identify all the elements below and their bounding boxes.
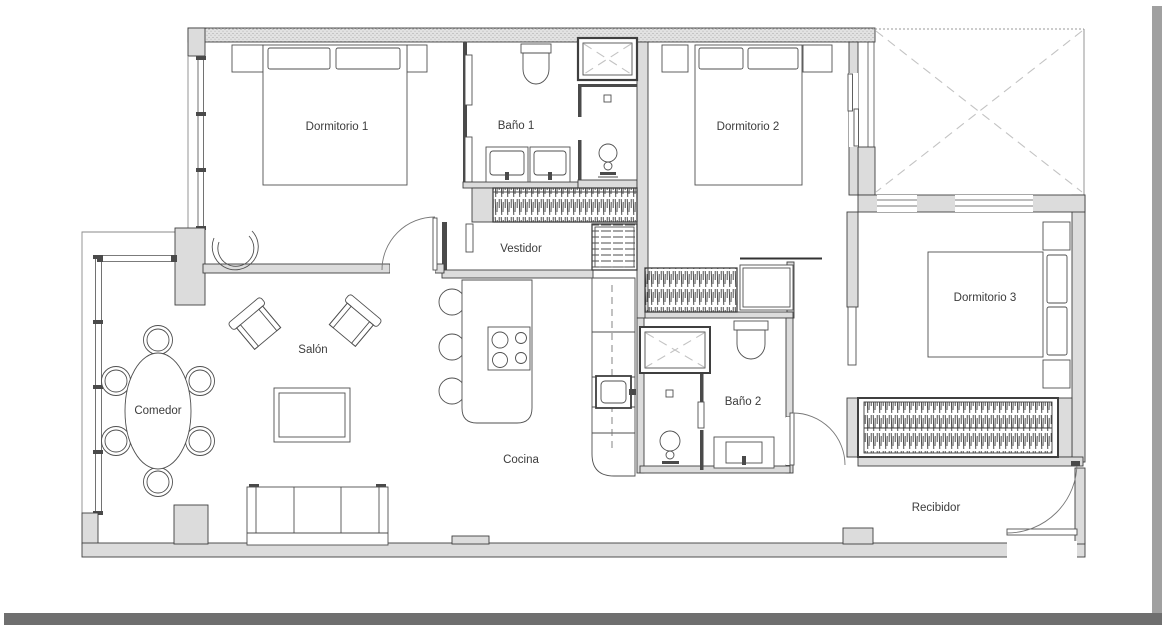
toilet-bano-1 — [523, 53, 549, 84]
wall-bano1-vestidor — [463, 182, 578, 188]
pedestal-sink-wc2 — [659, 390, 681, 466]
shelf-unit-vestidor — [592, 224, 637, 270]
dining-chair — [144, 326, 173, 355]
window-dormitorio-3-b — [955, 195, 1033, 212]
wall-dorm3-bottom — [858, 457, 1083, 466]
toilet-tank — [734, 321, 768, 330]
wall-dorm2-bano2 — [645, 312, 793, 318]
coffee-table — [274, 388, 350, 442]
window-dormitorio-2 — [848, 73, 859, 147]
pedestal-sink-wc1 — [598, 95, 618, 177]
label-bano-1: Baño 1 — [498, 120, 534, 132]
bottom-edge-shadow — [4, 613, 1162, 625]
wall-stub-wardrobe-right — [1058, 398, 1072, 457]
label-bano-2: Baño 2 — [725, 396, 761, 408]
wall-wc2-right-a — [700, 374, 704, 402]
pillow — [336, 48, 400, 69]
kitchen-sink — [596, 376, 636, 408]
bottom-wall — [82, 543, 1085, 557]
shower-bano-2 — [640, 327, 710, 373]
label-dormitorio-2: Dormitorio 2 — [717, 121, 780, 133]
label-salon: Salón — [298, 344, 327, 356]
pillow — [1047, 255, 1067, 303]
wall-stub-wardrobe-left — [847, 398, 858, 457]
dining-chair — [102, 367, 131, 396]
wall-vestidor-corner — [472, 188, 493, 222]
furniture-bano-2 — [640, 321, 774, 468]
sliding-door-bano1[interactable] — [465, 55, 472, 105]
wall-wc1-top — [578, 84, 637, 87]
dining-chair — [186, 367, 215, 396]
wall-block — [188, 28, 205, 56]
terrace-cross-line — [876, 31, 1082, 192]
furniture-cocina — [439, 278, 636, 476]
door-arc-dorm1 — [382, 217, 435, 270]
entrance-hinge — [1071, 461, 1080, 466]
wardrobe-rail-vestidor — [493, 188, 637, 222]
floorplan-canvas: Dormitorio 1 Baño 1 Dormitorio 2 Vestido… — [0, 0, 1162, 625]
wall-wc1-left-b — [578, 140, 582, 180]
furniture-salon — [228, 294, 388, 545]
toilet-tank — [521, 44, 551, 53]
wardrobe-dormitorio-3 — [858, 398, 1058, 457]
bottom-wall-pilaster-2 — [843, 528, 873, 544]
pillow — [268, 48, 330, 69]
sink-vanity — [530, 147, 570, 182]
dresser-dormitorio-2 — [740, 265, 793, 310]
window-dormitorio-3-a — [877, 195, 917, 212]
toilet-bano-2 — [737, 330, 765, 359]
closet-dormitorio-2 — [645, 268, 737, 312]
bar-stool — [439, 378, 465, 404]
dining-chair — [186, 427, 215, 456]
label-cocina: Cocina — [503, 454, 539, 466]
terrace-cross-line — [876, 31, 1082, 192]
bed-dormitorio-3 — [928, 252, 1043, 357]
nightstand — [232, 45, 263, 72]
furniture-dormitorio-2 — [645, 45, 832, 312]
floorplan-drawing: Dormitorio 1 Baño 1 Dormitorio 2 Vestido… — [0, 0, 1162, 625]
bar-stool — [439, 289, 465, 315]
nightstand — [803, 45, 832, 72]
kitchen-counter — [592, 278, 636, 476]
wall-vestidor-bottom — [442, 270, 593, 278]
bar-stool — [439, 334, 465, 360]
wall-bano2-right — [786, 318, 793, 417]
furniture-dormitorio-3 — [858, 222, 1070, 457]
bottom-wall-pillar — [174, 505, 208, 544]
pillow — [748, 48, 798, 69]
label-vestidor: Vestidor — [500, 243, 542, 255]
sliding-door-dorm3[interactable] — [848, 307, 856, 365]
right-edge-shadow — [1152, 6, 1162, 625]
sliding-door-vestidor[interactable] — [466, 224, 473, 252]
shower-bano-1 — [578, 38, 637, 80]
window-terrace — [868, 42, 874, 147]
entrance-opening — [1007, 541, 1077, 559]
nightstand — [407, 45, 427, 72]
sink-vanity-bano-2 — [714, 437, 774, 468]
terrace-corner-wall — [858, 147, 875, 195]
label-comedor: Comedor — [134, 405, 181, 417]
bottom-wall-pilaster — [452, 536, 489, 544]
top-wall — [188, 28, 875, 42]
right-wall-upper — [1072, 195, 1085, 462]
furniture-bano-1 — [486, 38, 637, 182]
sink-vanity — [486, 147, 528, 182]
nightstand — [662, 45, 688, 72]
label-dormitorio-1: Dormitorio 1 — [306, 121, 369, 133]
door-leaf-dorm1[interactable] — [433, 218, 437, 270]
door-arc-bano2 — [793, 413, 845, 465]
wall-wc1-bottom — [578, 180, 637, 188]
sliding-door-bano1-lower[interactable] — [465, 137, 472, 182]
pillow — [699, 48, 743, 69]
terrace — [858, 29, 1084, 195]
window-dormitorio-1 — [196, 56, 206, 230]
kitchen-island — [462, 280, 532, 423]
wall-pillar — [175, 228, 205, 305]
armchair — [228, 297, 284, 352]
wall-wc2-right-b — [700, 430, 704, 470]
window-comedor-top — [97, 255, 177, 262]
door-leaf-bano2[interactable] — [790, 413, 794, 465]
label-dormitorio-3: Dormitorio 3 — [954, 292, 1017, 304]
wall-hall-dorm3 — [847, 212, 858, 307]
wall-wc1-left-a — [578, 87, 582, 117]
sofa — [247, 484, 388, 545]
furniture-vestidor — [493, 188, 637, 270]
nightstand — [1043, 222, 1070, 250]
armchair — [326, 294, 382, 349]
wall-block-bottom-left — [82, 513, 98, 544]
dining-chair — [144, 468, 173, 497]
window-comedor-left — [93, 255, 103, 515]
sliding-door-wc2[interactable] — [698, 402, 704, 428]
dining-chair — [102, 427, 131, 456]
nightstand — [1043, 360, 1070, 388]
door-opening-dorm1 — [390, 263, 435, 274]
pillow — [1047, 307, 1067, 355]
label-recibidor: Recibidor — [912, 502, 961, 514]
entrance-door-arc — [1007, 463, 1077, 533]
